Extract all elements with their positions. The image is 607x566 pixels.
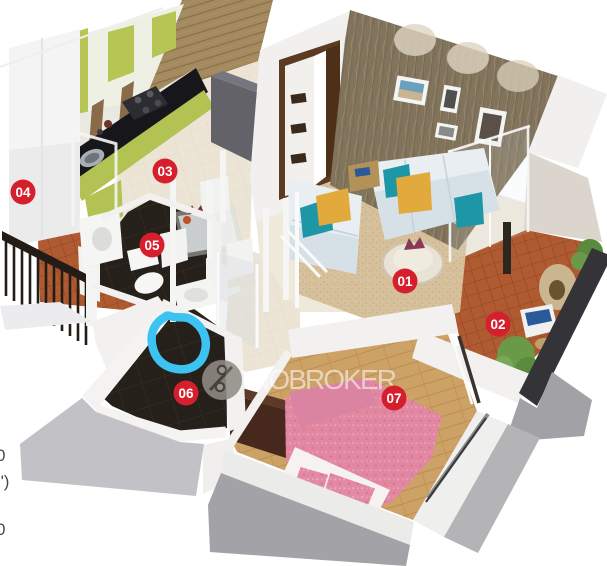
svg-text:06: 06 <box>178 386 194 401</box>
svg-text:."): .") <box>0 472 9 491</box>
svg-text:0: 0 <box>0 446 5 465</box>
svg-text:NOBROKER: NOBROKER <box>250 364 396 395</box>
svg-text:04: 04 <box>15 185 31 200</box>
svg-text:07: 07 <box>386 391 401 406</box>
svg-text:0: 0 <box>0 520 5 539</box>
svg-text:05: 05 <box>144 238 160 253</box>
svg-text:02: 02 <box>490 317 505 332</box>
svg-text:01: 01 <box>397 274 413 289</box>
svg-text:03: 03 <box>157 164 173 179</box>
